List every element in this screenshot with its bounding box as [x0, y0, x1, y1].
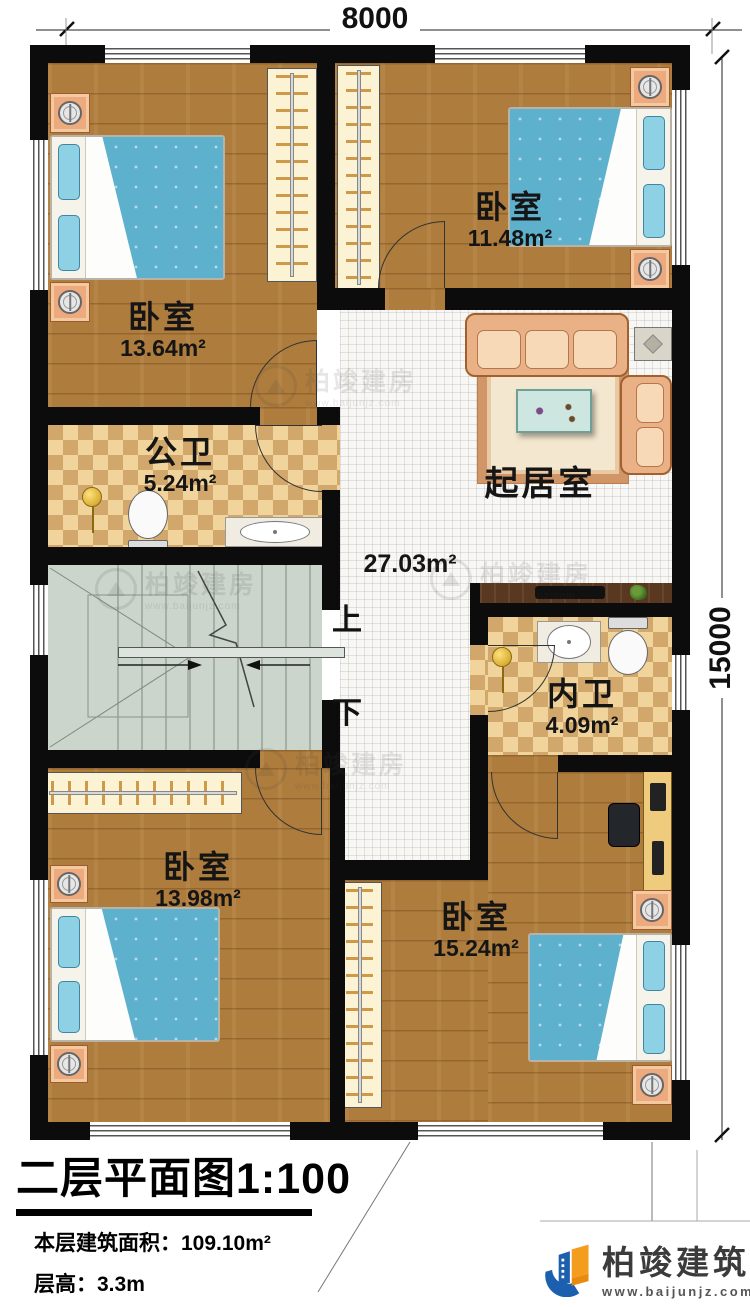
sofa-three-seat: [465, 313, 629, 377]
window: [672, 90, 690, 265]
room-label-living-room: 起居室: [450, 465, 630, 503]
door-opening-bedroom-top-right: [385, 288, 445, 310]
toilet-icon: [128, 490, 168, 552]
bed-pillows: [52, 137, 86, 278]
floor-plan-canvas: 8000 15000: [0, 0, 750, 1307]
floor-plan: 卧室13.64m² 卧室11.48m² 公卫5.24m² 起居室 27.03m²…: [30, 45, 690, 1140]
nightstand: [632, 890, 672, 930]
lamp-icon: [638, 75, 662, 99]
nightstand: [630, 249, 670, 289]
room-label-bedroom-top-right: 卧室11.48m²: [430, 190, 590, 252]
drawing-title: 二层平面图1:100: [16, 1144, 351, 1206]
blanket-fold: [86, 909, 165, 1040]
door-opening-bedroom-bottom-right: [488, 755, 558, 772]
lamp-stem: [92, 507, 95, 533]
chair: [608, 803, 640, 847]
lamp-icon: [57, 872, 81, 896]
window: [30, 140, 48, 290]
toilet-tank: [608, 617, 648, 629]
lamp-icon: [638, 257, 662, 281]
bed-pillows: [636, 935, 670, 1060]
tv-icon: [535, 586, 605, 599]
dimension-height-label: 15000: [704, 598, 740, 698]
room-area-living-room: 27.03m²: [330, 550, 490, 578]
sofa-cushion: [525, 330, 569, 369]
pillow: [643, 184, 665, 238]
wall-private-bath-bottom: [558, 755, 672, 772]
room-label-bedroom-bottom-right: 卧室15.24m²: [396, 900, 556, 962]
room-label-private-bathroom: 内卫4.09m²: [502, 677, 662, 739]
bed: [50, 907, 220, 1042]
floor-height-line: 层高：3.3m: [16, 1268, 351, 1298]
nightstand: [630, 67, 670, 107]
pillow: [58, 144, 80, 200]
window: [30, 880, 48, 1055]
room-label-bedroom-bottom-left: 卧室13.98m²: [118, 850, 278, 912]
pillow: [58, 215, 80, 271]
wall-corridor-right: [470, 755, 488, 880]
pillow: [643, 116, 665, 170]
toilet-bowl: [608, 630, 648, 675]
wardrobe: [44, 772, 242, 814]
floor-area-line: 本层建筑面积：109.10m²: [16, 1227, 351, 1257]
wall-stairs-bottom: [30, 750, 260, 768]
sofa-cushion: [573, 330, 617, 369]
lamp-icon: [58, 101, 82, 125]
window: [672, 945, 690, 1080]
stairs-down-label: 下: [327, 688, 367, 732]
bed-mattress: [86, 137, 223, 278]
side-table-top: [643, 334, 663, 354]
dimension-width-label: 8000: [330, 2, 420, 36]
blanket-fold: [86, 137, 168, 278]
wardrobe-pole: [358, 887, 362, 1103]
lamp-icon: [640, 1073, 664, 1097]
desk-item: [652, 841, 664, 875]
bed-pillows: [52, 909, 86, 1040]
nightstand: [50, 93, 90, 133]
sink-counter: [225, 517, 325, 547]
desk: [643, 770, 672, 892]
wall-stub: [317, 407, 340, 425]
door-opening-bedroom-top-left: [260, 407, 317, 425]
coffee-table: [516, 389, 592, 433]
brand-texts: 柏竣建筑 www.baijunjz.com: [602, 1236, 750, 1299]
door-opening-public-bathroom: [322, 425, 340, 490]
wall-bedroom-bl-right: [330, 768, 345, 1122]
room-label-bedroom-top-left: 卧室13.64m²: [83, 300, 243, 362]
wardrobe: [337, 65, 380, 290]
title-underline: [16, 1209, 312, 1216]
sofa-two-seat: [620, 375, 672, 475]
pillow: [58, 916, 80, 968]
stair-handrail: [118, 647, 345, 658]
desk-item: [650, 783, 666, 811]
pillow: [643, 1004, 665, 1054]
toilet-bowl: [128, 490, 168, 539]
plant-icon: [630, 585, 647, 600]
wardrobe-pole: [357, 70, 361, 285]
wall-top-bedrooms-divider: [317, 45, 335, 310]
window: [30, 585, 48, 655]
nightstand: [50, 865, 88, 903]
nightstand: [632, 1065, 672, 1105]
bed-pillows: [636, 109, 670, 245]
wardrobe: [267, 68, 317, 282]
bed-mattress: [86, 909, 218, 1040]
wall-bedroom-tl-bottom: [30, 407, 260, 425]
wall-public-bath-bottom: [30, 547, 340, 565]
window: [672, 655, 690, 710]
brand-logo-icon: [540, 1239, 596, 1297]
stairs-up-label: 上: [327, 595, 367, 639]
blanket-fold: [572, 935, 636, 1060]
wardrobe-pole: [290, 73, 294, 277]
wall-private-bath-left-bottom: [470, 715, 488, 755]
door-opening-private-bathroom: [470, 645, 488, 715]
side-table: [634, 327, 672, 361]
wall-bedroom-tr-bottom-left: [317, 288, 385, 310]
pillow: [58, 981, 80, 1033]
lamp-ball: [82, 487, 102, 507]
lamp-icon: [57, 1052, 81, 1076]
wardrobe-pole: [49, 791, 237, 795]
title-block: 二层平面图1:100 本层建筑面积：109.10m² 层高：3.3m: [16, 1144, 351, 1298]
toilet-icon: [608, 617, 648, 675]
sofa-cushion: [636, 427, 664, 467]
bed: [50, 135, 225, 280]
sofa-cushion: [636, 383, 664, 423]
wall-bedroom-tr-bottom-right: [445, 288, 672, 310]
window: [435, 45, 585, 63]
pillow: [643, 941, 665, 991]
lamp-icon: [640, 898, 664, 922]
window: [418, 1122, 603, 1140]
wall-private-bath-top: [488, 602, 672, 617]
brand-logo: 柏竣建筑 www.baijunjz.com: [540, 1236, 750, 1299]
brand-name: 柏竣建筑: [602, 1236, 750, 1284]
sofa-cushion: [477, 330, 521, 369]
room-label-public-bathroom: 公卫5.24m²: [100, 435, 260, 497]
brand-website: www.baijunjz.com: [602, 1284, 750, 1299]
nightstand: [50, 1045, 88, 1083]
sink-icon: [240, 521, 311, 543]
wall-corridor-bottom: [345, 860, 470, 880]
window: [105, 45, 250, 63]
door-opening-bedroom-bottom-left: [260, 750, 322, 768]
window: [90, 1122, 290, 1140]
lamp-icon: [58, 290, 82, 314]
